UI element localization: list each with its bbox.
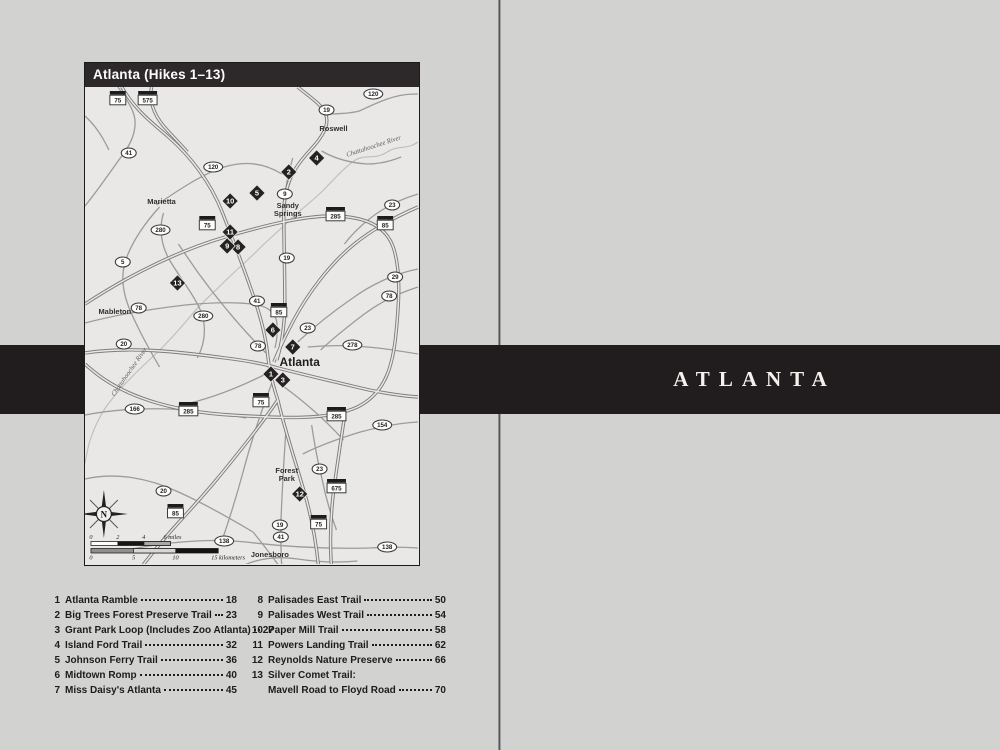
interstate-shield-75: 75 — [110, 91, 126, 105]
interstate-shield-675: 675 — [327, 479, 346, 493]
dot-leader — [141, 599, 223, 601]
svg-text:278: 278 — [347, 342, 358, 349]
dot-leader — [399, 689, 432, 691]
svg-text:166: 166 — [130, 406, 141, 413]
hike-list-item: 12Reynolds Nature Preserve66 — [251, 653, 446, 668]
city-label: SandySprings — [274, 201, 302, 218]
hike-number: 2 — [48, 608, 60, 623]
hike-list-item: 7Miss Daisy's Atlanta45 — [48, 683, 237, 698]
route-shield-19: 19 — [319, 105, 334, 115]
hike-number: 5 — [48, 653, 60, 668]
hike-title: Big Trees Forest Preserve Trail — [65, 608, 212, 623]
hike-list-right-column: 8Palisades East Trail509Palisades West T… — [251, 593, 446, 698]
route-shield-78: 78 — [131, 303, 146, 313]
interstate-shield-285: 285 — [179, 402, 198, 416]
hike-marker-5: 5 — [249, 185, 265, 201]
book-spread: ATLANTA Atlanta (Hikes 1–13) — [0, 0, 1000, 750]
route-shield-19: 19 — [272, 520, 287, 530]
hike-list-item: Mavell Road to Floyd Road70 — [251, 683, 446, 698]
svg-text:85: 85 — [275, 310, 282, 317]
hike-title: Johnson Ferry Trail — [65, 653, 158, 668]
road-network — [85, 87, 418, 564]
route-shield-280: 280 — [151, 225, 170, 235]
dot-leader — [161, 659, 223, 661]
interstate-shield-85: 85 — [377, 216, 393, 230]
svg-text:23: 23 — [304, 325, 311, 332]
hike-title: Palisades West Trail — [268, 608, 364, 623]
hike-number: 9 — [251, 608, 263, 623]
svg-text:20: 20 — [120, 341, 127, 348]
hike-marker-10: 10 — [222, 193, 238, 209]
svg-text:10: 10 — [226, 197, 234, 206]
page-number: 54 — [435, 608, 446, 623]
hike-title: Powers Landing Trail — [268, 638, 369, 653]
hike-number: 11 — [251, 638, 263, 653]
svg-text:85: 85 — [172, 511, 179, 518]
hike-number: 4 — [48, 638, 60, 653]
svg-text:75: 75 — [114, 98, 121, 105]
svg-text:280: 280 — [198, 313, 209, 320]
interstate-shield-75: 75 — [253, 393, 269, 407]
svg-text:85: 85 — [382, 223, 389, 230]
hike-title: Reynolds Nature Preserve — [268, 653, 393, 668]
dot-leader — [342, 629, 432, 631]
svg-text:75: 75 — [204, 223, 211, 230]
hike-number: 13 — [251, 668, 263, 683]
city-label: Roswell — [319, 124, 347, 133]
hike-number: 12 — [251, 653, 263, 668]
interstate-shield-85: 85 — [271, 303, 287, 317]
river-label: Chattahoochee River — [110, 346, 149, 397]
svg-text:9: 9 — [283, 191, 287, 198]
hike-number: 10 — [251, 623, 263, 638]
hike-number: 6 — [48, 668, 60, 683]
interstate-shield-285: 285 — [327, 407, 346, 421]
hike-number: 3 — [48, 623, 60, 638]
route-shield-20: 20 — [116, 339, 131, 349]
hike-title: Miss Daisy's Atlanta — [65, 683, 161, 698]
dot-leader — [396, 659, 432, 661]
hike-list-item: 11Powers Landing Trail62 — [251, 638, 446, 653]
city-label: Marietta — [147, 197, 176, 206]
svg-text:78: 78 — [386, 293, 393, 300]
svg-text:9: 9 — [225, 242, 229, 251]
dot-leader — [364, 599, 431, 601]
svg-text:285: 285 — [183, 409, 194, 416]
route-shield-138: 138 — [215, 536, 234, 546]
svg-text:29: 29 — [392, 274, 399, 281]
page-number: 58 — [435, 623, 446, 638]
svg-text:1: 1 — [269, 370, 273, 379]
hike-title: Palisades East Trail — [268, 593, 361, 608]
city-label: Mableton — [98, 307, 131, 316]
interstate-shield-575: 575 — [138, 91, 157, 105]
svg-text:7: 7 — [291, 343, 295, 352]
route-shield-23: 23 — [312, 464, 327, 474]
route-shield-9: 9 — [277, 189, 292, 199]
page-number: 18 — [226, 593, 237, 608]
route-shield-120: 120 — [204, 162, 223, 172]
page-number: 32 — [226, 638, 237, 653]
page-number: 45 — [226, 683, 237, 698]
svg-text:19: 19 — [276, 522, 283, 529]
svg-text:23: 23 — [316, 466, 323, 473]
hike-marker-4: 4 — [308, 150, 324, 166]
svg-text:8: 8 — [236, 243, 240, 252]
route-shield-29: 29 — [388, 272, 403, 282]
river-label: Chattahoochee River — [346, 134, 403, 159]
route-shield-154: 154 — [373, 420, 392, 430]
atlanta-hikes-map: Chattahoochee RiverChattahoochee River41… — [85, 87, 419, 564]
svg-text:13: 13 — [173, 279, 181, 288]
hike-list-left-column: 1Atlanta Ramble182Big Trees Forest Prese… — [48, 593, 237, 698]
svg-text:11: 11 — [226, 228, 234, 237]
svg-text:41: 41 — [254, 298, 261, 305]
dot-leader — [145, 644, 223, 646]
route-shield-120: 120 — [364, 89, 383, 99]
svg-text:120: 120 — [368, 91, 379, 98]
interstate-shield-75: 75 — [311, 515, 327, 529]
svg-text:138: 138 — [382, 544, 393, 551]
hike-title: Grant Park Loop (Includes Zoo Atlanta) — [65, 623, 251, 638]
hike-number: 8 — [251, 593, 263, 608]
page-number: 36 — [226, 653, 237, 668]
hike-list-item: 3Grant Park Loop (Includes Zoo Atlanta)2… — [48, 623, 237, 638]
svg-text:5: 5 — [121, 259, 125, 266]
route-shield-23: 23 — [300, 323, 315, 333]
route-shield-19: 19 — [279, 253, 294, 263]
svg-text:154: 154 — [377, 422, 388, 429]
page-number: 70 — [435, 683, 446, 698]
scale-miles-tick: 6 miles — [164, 534, 182, 541]
page-number: 23 — [226, 608, 237, 623]
svg-text:6: 6 — [271, 326, 275, 335]
route-shield-278: 278 — [343, 340, 362, 350]
map-title-bar: Atlanta (Hikes 1–13) — [85, 63, 419, 87]
map-panel: Atlanta (Hikes 1–13) — [84, 62, 420, 566]
route-shield-41: 41 — [250, 296, 265, 306]
svg-text:675: 675 — [331, 486, 342, 493]
route-shield-280: 280 — [194, 311, 213, 321]
route-shield-41: 41 — [121, 148, 136, 158]
svg-text:2: 2 — [287, 168, 291, 177]
svg-text:120: 120 — [208, 164, 219, 171]
hike-marker-2: 2 — [281, 164, 297, 180]
page-number: 50 — [435, 593, 446, 608]
hike-list-item: 4Island Ford Trail32 — [48, 638, 237, 653]
dot-leader — [140, 674, 223, 676]
svg-text:19: 19 — [323, 107, 330, 114]
hike-title: Paper Mill Trail — [268, 623, 339, 638]
svg-text:41: 41 — [277, 534, 284, 541]
route-shield-23: 23 — [385, 200, 400, 210]
hike-title: Island Ford Trail — [65, 638, 142, 653]
highway-centerlines — [85, 87, 418, 564]
svg-text:19: 19 — [283, 255, 290, 262]
hike-list-item: 6Midtown Romp40 — [48, 668, 237, 683]
svg-text:20: 20 — [160, 488, 167, 495]
hike-marker-6: 6 — [265, 322, 281, 338]
chapter-title-text: ATLANTA — [673, 367, 836, 392]
svg-text:23: 23 — [389, 202, 396, 209]
svg-text:285: 285 — [330, 214, 341, 221]
hike-list-item: 1Atlanta Ramble18 — [48, 593, 237, 608]
city-label: Jonesboro — [251, 550, 290, 559]
svg-text:78: 78 — [135, 305, 142, 312]
svg-text:78: 78 — [255, 343, 262, 350]
city-label: ForestPark — [275, 466, 298, 483]
svg-text:75: 75 — [258, 400, 265, 407]
scale-miles-tick: 2 — [116, 534, 119, 541]
interstate-shield-285: 285 — [326, 207, 345, 221]
page-number: 66 — [435, 653, 446, 668]
hike-number: 1 — [48, 593, 60, 608]
route-shield-41: 41 — [273, 532, 288, 542]
hike-list-item: 2Big Trees Forest Preserve Trail23 — [48, 608, 237, 623]
highway-network — [85, 87, 418, 564]
scale-km-tick: 0 — [89, 554, 93, 561]
dot-leader — [215, 614, 223, 616]
hike-title: Mavell Road to Floyd Road — [268, 683, 396, 698]
interstate-shield-85: 85 — [168, 504, 184, 518]
svg-text:5: 5 — [255, 189, 259, 198]
scale-km-tick: 10 — [172, 554, 179, 561]
hike-list-item: 10Paper Mill Trail58 — [251, 623, 446, 638]
scale-miles-tick: 4 — [142, 534, 145, 541]
hike-title: Atlanta Ramble — [65, 593, 138, 608]
page-number: 62 — [435, 638, 446, 653]
hike-marker-13: 13 — [169, 275, 185, 291]
hike-title: Midtown Romp — [65, 668, 137, 683]
hike-list-item: 8Palisades East Trail50 — [251, 593, 446, 608]
route-shield-138: 138 — [378, 542, 397, 552]
svg-text:12: 12 — [296, 490, 304, 499]
dot-leader — [164, 689, 223, 691]
route-shield-166: 166 — [125, 404, 144, 414]
svg-text:138: 138 — [219, 538, 230, 545]
hike-list-item: 9Palisades West Trail54 — [251, 608, 446, 623]
page-number: 40 — [226, 668, 237, 683]
compass-north-label: N — [101, 509, 108, 519]
route-shield-78: 78 — [382, 291, 397, 301]
hike-list-item: 13Silver Comet Trail: — [251, 668, 446, 683]
scale-km-tick: 15 kilometers — [211, 554, 245, 561]
scale-km-tick: 5 — [132, 554, 135, 561]
city-label: Atlanta — [280, 355, 321, 369]
svg-text:285: 285 — [331, 414, 342, 421]
scale-miles-tick: 0 — [89, 534, 93, 541]
route-shield-5: 5 — [115, 257, 130, 267]
svg-text:3: 3 — [281, 376, 285, 385]
svg-text:575: 575 — [142, 98, 153, 105]
chapter-title: ATLANTA — [500, 345, 1000, 414]
hike-number: 7 — [48, 683, 60, 698]
route-shield-20: 20 — [156, 486, 171, 496]
route-shield-78: 78 — [251, 341, 266, 351]
svg-text:75: 75 — [315, 522, 322, 529]
hike-title: Silver Comet Trail: — [268, 668, 356, 683]
dot-leader — [372, 644, 432, 646]
compass-rose-icon: N — [85, 490, 128, 538]
svg-text:41: 41 — [125, 150, 132, 157]
dot-leader — [367, 614, 432, 616]
hike-list-item: 5Johnson Ferry Trail36 — [48, 653, 237, 668]
interstate-shield-75: 75 — [199, 216, 215, 230]
svg-text:280: 280 — [155, 227, 166, 234]
